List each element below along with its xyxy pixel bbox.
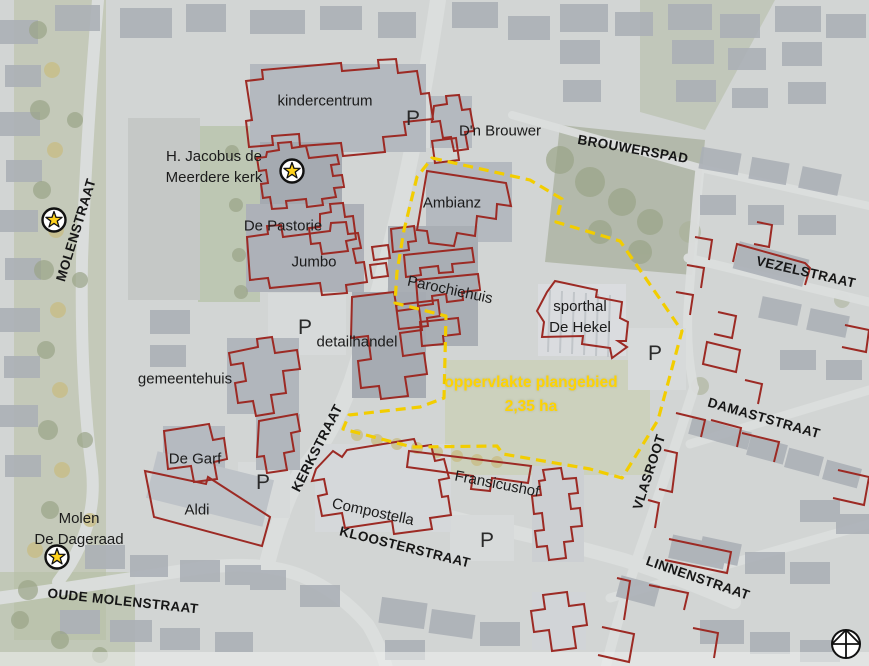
label-ambianz: Ambianz — [423, 195, 481, 212]
parking-label: P — [298, 316, 312, 340]
star-icon — [43, 209, 66, 232]
label-de-garf: De Garf — [169, 451, 222, 468]
label-dn-brouwer: D'n Brouwer — [459, 123, 541, 140]
map-canvas — [0, 0, 869, 666]
label-de-pastorie: De Pastorie — [244, 218, 322, 235]
label-kindercentrum: kindercentrum — [277, 93, 372, 110]
label-kerk: H. Jacobus de Meerdere kerk — [166, 146, 263, 188]
star-icon — [281, 160, 304, 183]
label-gemeentehuis: gemeentehuis — [138, 371, 232, 388]
photo-base — [0, 0, 869, 666]
parking-label: P — [648, 342, 662, 366]
label-molen: Molen De Dageraad — [34, 508, 123, 550]
label-aldi: Aldi — [184, 502, 209, 519]
aerial-plan-map: kindercentrum P D'n Brouwer BROUWERSPAD … — [0, 0, 869, 666]
parking-label: P — [480, 529, 494, 553]
label-sporthal: sporthal De Hekel — [549, 296, 611, 338]
parking-label: P — [256, 471, 270, 495]
north-compass-icon — [832, 630, 860, 658]
parking-label: P — [406, 107, 420, 131]
plan-area-label: oppervlakte plangebied 2,35 ha — [444, 371, 617, 419]
label-jumbo: Jumbo — [291, 254, 336, 271]
label-detailhandel: detailhandel — [317, 334, 398, 351]
